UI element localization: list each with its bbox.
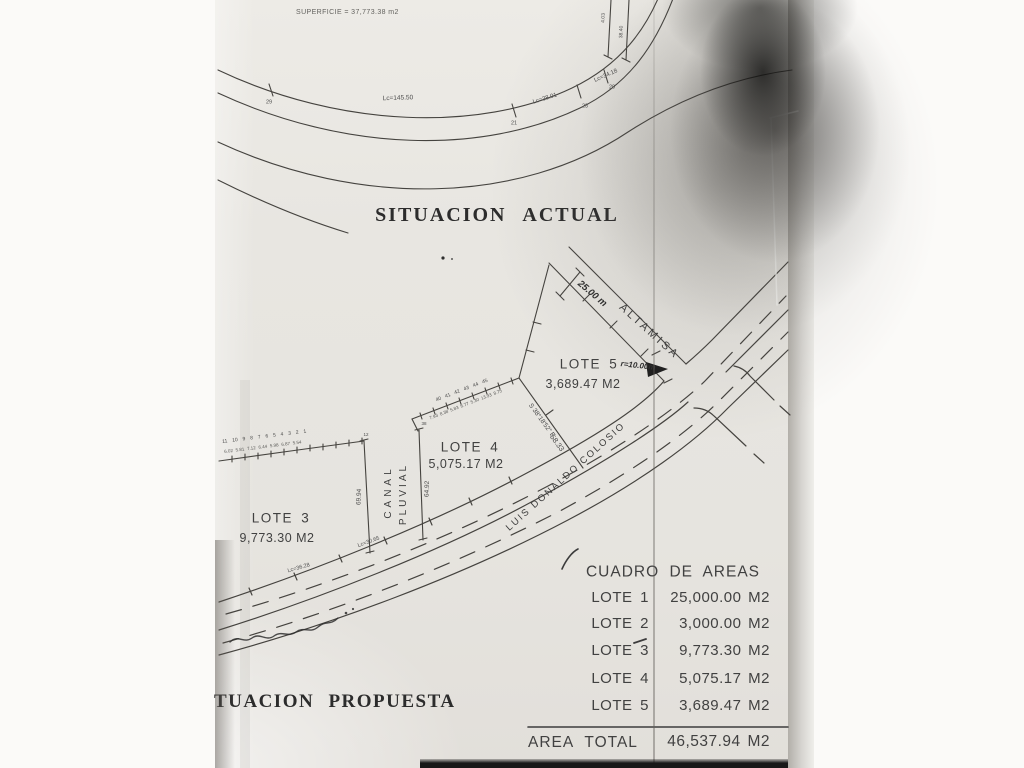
title-situacion-propuesta: SITUACION PROPUESTA <box>213 692 456 711</box>
lote4-area: 5,075.17 M2 <box>429 458 504 471</box>
table-row-value: 3,000.00 M2 <box>653 615 770 632</box>
ink-speck <box>451 258 453 260</box>
table-total-label: AREA TOTAL <box>528 735 638 751</box>
side-street-dim: 4.03 <box>601 13 606 23</box>
lote3-area: 9,773.30 M2 <box>240 532 315 545</box>
canal-left-length: 69.94 <box>356 489 363 506</box>
scan-bottom-edge <box>420 759 788 768</box>
canal-right-length: 64.92 <box>424 481 431 497</box>
top-road-lines <box>218 0 792 233</box>
canal-label-line1: CANAL <box>384 465 394 518</box>
table-row-label: LOTE 2 <box>530 615 649 632</box>
table-row-label: LOTE 5 <box>530 697 649 714</box>
title-situacion-propuesta-clip: SITUACION PROPUESTA <box>213 688 483 722</box>
lote5-area: 3,689.47 M2 <box>546 378 621 391</box>
page-edge-shadow <box>215 540 235 768</box>
table-row-value: 9,773.30 M2 <box>653 642 770 659</box>
ink-speck <box>441 256 444 259</box>
table-row-value: 5,075.17 M2 <box>653 670 770 687</box>
table-total-value: 46,537.94 M2 <box>653 733 770 751</box>
point-number: 20 <box>609 85 615 91</box>
superficie-note: SUPERFICIE = 37,773.38 m2 <box>296 9 399 16</box>
side-street-dim: 38.40 <box>619 26 624 39</box>
table-row-value: 3,689.47 M2 <box>653 697 770 714</box>
canal-label-line2: PLUVIAL <box>399 463 409 525</box>
table-row-label: LOTE 1 <box>530 589 649 606</box>
table-row-value: 25,000.00 M2 <box>653 589 770 606</box>
lote4-name: LOTE 4 <box>441 440 500 454</box>
lote3-name: LOTE 3 <box>252 511 311 525</box>
table-title: CUADRO DE AREAS <box>586 564 760 580</box>
handwriting-squiggle <box>230 608 354 642</box>
point-number: 21 <box>511 121 517 127</box>
lote5-name: LOTE 5 <box>560 357 619 371</box>
canal-point-number: 12 <box>363 433 368 438</box>
point-number: 29 <box>266 100 272 106</box>
scanned-survey-page: SUPERFICIE = 37,773.38 m2 SITUACION ACTU… <box>0 0 1024 768</box>
point-number: 23 <box>582 104 588 110</box>
table-row-label: LOTE 4 <box>530 670 649 687</box>
canal-point-number: 38 <box>421 422 426 427</box>
curve-label-top-mid: Lc=145.50 <box>383 95 414 103</box>
paper-fold-line <box>653 0 655 768</box>
plat-drawing <box>0 0 1024 768</box>
title-situacion-actual: SITUACION ACTUAL <box>375 205 619 225</box>
table-row-label: LOTE 3 <box>530 642 649 659</box>
